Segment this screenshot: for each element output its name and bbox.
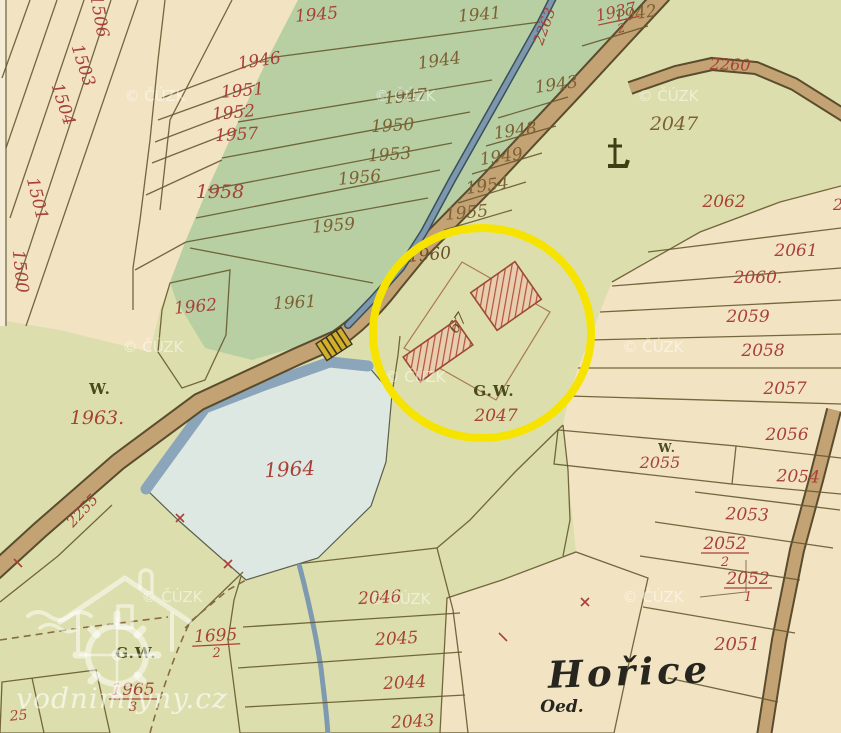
cadastral-map: 1506 1503 1504 1501 1500 1945 1946 1951 … bbox=[0, 0, 841, 733]
cuzk-watermark: © ČÚZK bbox=[637, 86, 699, 105]
fraction-numerator: 2052 bbox=[702, 534, 746, 554]
parcel-label-2062: 2062 bbox=[701, 192, 745, 212]
meadow-symbol-w-1963: W. bbox=[88, 380, 111, 398]
parcel-label-2045: 2045 bbox=[374, 628, 419, 650]
fraction-denominator: 2 bbox=[720, 555, 729, 570]
parcel-label-1959: 1959 bbox=[311, 214, 356, 238]
parcel-label-2059: 2059 bbox=[725, 307, 769, 327]
fraction-denominator: 1 bbox=[744, 590, 752, 605]
road-label-2260: 2260 bbox=[709, 54, 751, 74]
parcel-label-2047-top: 2047 bbox=[649, 113, 699, 135]
parcel-label-1964: 1964 bbox=[264, 456, 316, 483]
parcel-label-1951: 1951 bbox=[220, 79, 265, 103]
parcel-label-2061: 2061 bbox=[773, 241, 817, 261]
parcel-label-1941: 1941 bbox=[457, 3, 502, 27]
place-name-horice: Hořice bbox=[546, 647, 712, 697]
site-watermark: vodnimlyny.cz bbox=[16, 682, 227, 715]
parcel-label-2060: 2060. bbox=[733, 268, 783, 288]
parcel-label-2043: 2043 bbox=[390, 711, 435, 733]
parcel-label-1955: 1955 bbox=[444, 201, 489, 225]
cuzk-watermark: © ČÚZK bbox=[141, 587, 203, 606]
parcel-label-1950: 1950 bbox=[371, 115, 415, 137]
fraction-denominator: 2 bbox=[211, 646, 221, 661]
parcel-label-1962: 1962 bbox=[173, 295, 218, 319]
cuzk-watermark: © ČÚZK bbox=[622, 587, 684, 606]
cuzk-watermark: © ČÚZK bbox=[374, 86, 436, 105]
cuzk-watermark: © ČÚZK bbox=[622, 337, 684, 356]
parcel-label-1963: 1963. bbox=[70, 407, 124, 429]
place-name-oed: Oed. bbox=[540, 697, 583, 717]
cuzk-watermark: © ČÚZK bbox=[384, 367, 446, 386]
cadastral-map-viewport[interactable]: 1506 1503 1504 1501 1500 1945 1946 1951 … bbox=[0, 0, 841, 733]
parcel-label-2055: 2055 bbox=[639, 453, 681, 472]
cuzk-watermark: © ČÚZK bbox=[122, 337, 184, 356]
parcel-label-1952: 1952 bbox=[211, 101, 256, 125]
parcel-label-2056: 2056 bbox=[764, 425, 808, 445]
parcel-label-2058: 2058 bbox=[740, 341, 784, 361]
parcel-label-1961: 1961 bbox=[273, 292, 317, 314]
parcel-label-2051: 2051 bbox=[713, 634, 760, 655]
parcel-label-1956: 1956 bbox=[337, 166, 382, 190]
parcel-label-1957: 1957 bbox=[215, 124, 259, 146]
parcel-label-1945: 1945 bbox=[294, 3, 339, 27]
parcel-label-2054: 2054 bbox=[775, 466, 820, 488]
cuzk-watermark: © ČÚZK bbox=[369, 589, 431, 608]
parcel-label-1953: 1953 bbox=[367, 144, 412, 167]
cuzk-watermark: © ČÚZK bbox=[124, 86, 186, 105]
parcel-label-2047-circle: 2047 bbox=[473, 406, 517, 426]
gw-label-circle: G.W. bbox=[473, 382, 514, 400]
parcel-label-1958: 1958 bbox=[196, 181, 244, 203]
parcel-label-2053: 2053 bbox=[724, 504, 769, 526]
parcel-label-2057: 2057 bbox=[762, 379, 806, 399]
parcel-label-edge-partial: 2 bbox=[832, 195, 841, 214]
parcel-label-2044: 2044 bbox=[382, 672, 427, 694]
fraction-numerator: 2052 bbox=[725, 569, 769, 589]
